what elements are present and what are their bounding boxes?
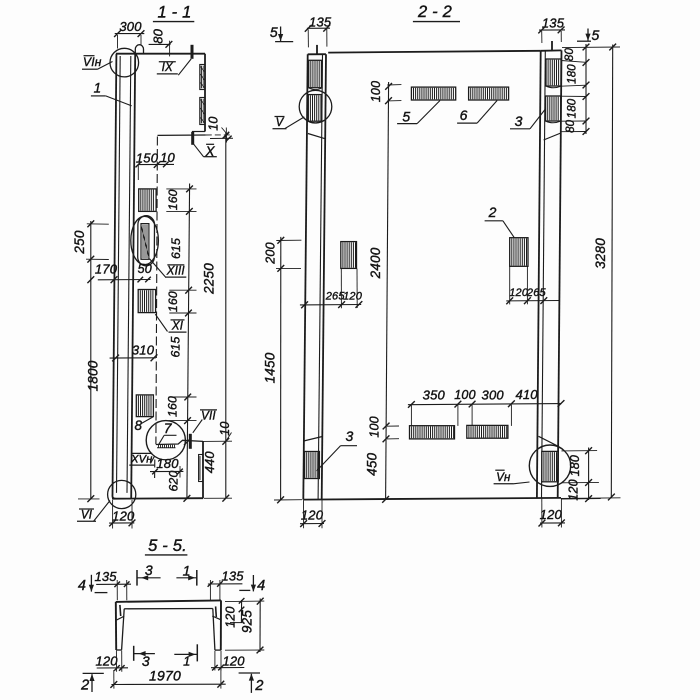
svg-text:300: 300: [119, 19, 142, 34]
svg-text:100: 100: [368, 416, 382, 437]
svg-text:925: 925: [239, 610, 254, 633]
svg-text:V: V: [276, 117, 285, 129]
svg-text:2 - 2: 2 - 2: [417, 3, 452, 21]
svg-text:80: 80: [564, 48, 576, 62]
svg-text:160: 160: [166, 396, 180, 417]
svg-text:120: 120: [567, 479, 581, 500]
svg-text:XI: XI: [171, 320, 184, 332]
svg-text:10: 10: [207, 116, 221, 130]
svg-text:2400: 2400: [368, 247, 383, 279]
svg-text:VI: VI: [81, 510, 93, 522]
svg-text:2250: 2250: [202, 263, 217, 295]
svg-text:180: 180: [568, 455, 582, 476]
svg-text:Vн: Vн: [496, 472, 511, 484]
svg-text:5 - 5.: 5 - 5.: [148, 537, 187, 555]
svg-text:8: 8: [134, 418, 142, 433]
svg-text:4: 4: [257, 578, 265, 594]
svg-text:100: 100: [454, 388, 475, 402]
svg-text:160: 160: [166, 189, 180, 210]
svg-text:180: 180: [567, 98, 579, 118]
svg-text:265: 265: [526, 287, 547, 299]
svg-text:5: 5: [592, 27, 600, 43]
svg-text:4: 4: [78, 578, 86, 594]
svg-text:160: 160: [166, 291, 180, 312]
svg-text:2: 2: [488, 204, 497, 220]
svg-text:IX: IX: [162, 62, 174, 74]
svg-text:XIII: XIII: [166, 265, 186, 277]
svg-text:3: 3: [145, 562, 153, 578]
svg-text:1970: 1970: [149, 668, 181, 684]
svg-text:VIн: VIн: [83, 55, 102, 69]
svg-text:450: 450: [365, 452, 380, 475]
svg-text:XVн: XVн: [130, 453, 152, 465]
svg-text:120: 120: [222, 653, 245, 668]
svg-text:350: 350: [423, 388, 446, 403]
svg-text:120: 120: [301, 507, 324, 522]
svg-text:80: 80: [565, 119, 577, 133]
svg-text:120: 120: [509, 287, 529, 299]
svg-text:180: 180: [567, 64, 579, 84]
svg-text:3280: 3280: [593, 238, 608, 269]
svg-text:170: 170: [95, 262, 118, 277]
svg-text:VII: VII: [201, 410, 216, 422]
svg-text:2: 2: [254, 678, 263, 694]
svg-text:1 - 1: 1 - 1: [157, 4, 191, 22]
svg-text:120: 120: [540, 507, 563, 522]
svg-text:6: 6: [460, 107, 468, 123]
svg-text:615: 615: [169, 337, 183, 358]
svg-text:310: 310: [132, 343, 155, 358]
svg-text:5: 5: [270, 24, 278, 40]
svg-text:410: 410: [515, 387, 538, 402]
svg-text:200: 200: [263, 242, 277, 264]
svg-text:50: 50: [138, 262, 152, 276]
svg-text:300: 300: [482, 388, 505, 403]
svg-text:3: 3: [346, 428, 354, 444]
svg-text:120: 120: [223, 606, 237, 627]
svg-text:135: 135: [221, 569, 244, 584]
svg-text:120: 120: [95, 654, 118, 669]
svg-text:5: 5: [402, 108, 410, 124]
svg-text:180: 180: [156, 456, 179, 471]
svg-text:250: 250: [72, 230, 87, 254]
svg-text:80: 80: [150, 28, 165, 43]
svg-text:615: 615: [169, 238, 183, 259]
svg-text:2: 2: [80, 678, 89, 694]
svg-text:1800: 1800: [85, 360, 100, 391]
svg-text:1450: 1450: [262, 352, 277, 383]
svg-text:10: 10: [218, 421, 232, 435]
svg-text:3: 3: [515, 113, 523, 129]
svg-text:135: 135: [94, 569, 117, 584]
svg-text:7: 7: [164, 420, 173, 436]
svg-text:120: 120: [343, 291, 363, 303]
svg-text:100: 100: [369, 81, 383, 102]
svg-text:440: 440: [202, 451, 217, 474]
svg-text:3: 3: [142, 653, 150, 669]
svg-text:135: 135: [542, 16, 565, 31]
svg-text:1: 1: [94, 81, 102, 96]
